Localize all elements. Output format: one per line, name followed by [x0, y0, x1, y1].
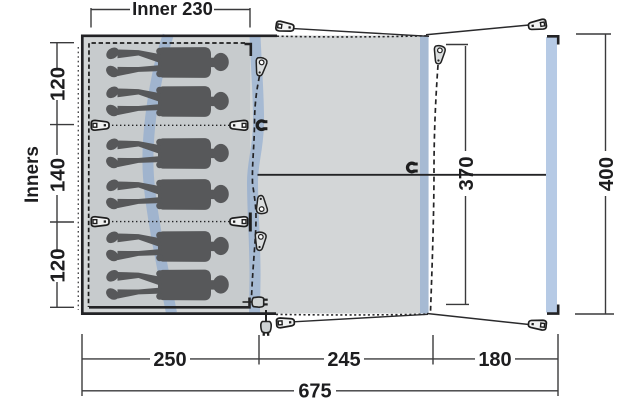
svg-text:675: 675: [298, 381, 331, 400]
svg-text:120: 120: [47, 248, 70, 282]
svg-text:250: 250: [153, 349, 186, 371]
svg-text:400: 400: [595, 157, 618, 191]
svg-text:370: 370: [455, 156, 478, 190]
svg-text:Inners: Inners: [22, 146, 43, 203]
svg-text:140: 140: [47, 158, 70, 192]
svg-text:120: 120: [47, 67, 70, 101]
svg-text:180: 180: [478, 349, 511, 371]
svg-text:245: 245: [327, 349, 360, 371]
svg-text:Inner 230: Inner 230: [132, 0, 213, 19]
